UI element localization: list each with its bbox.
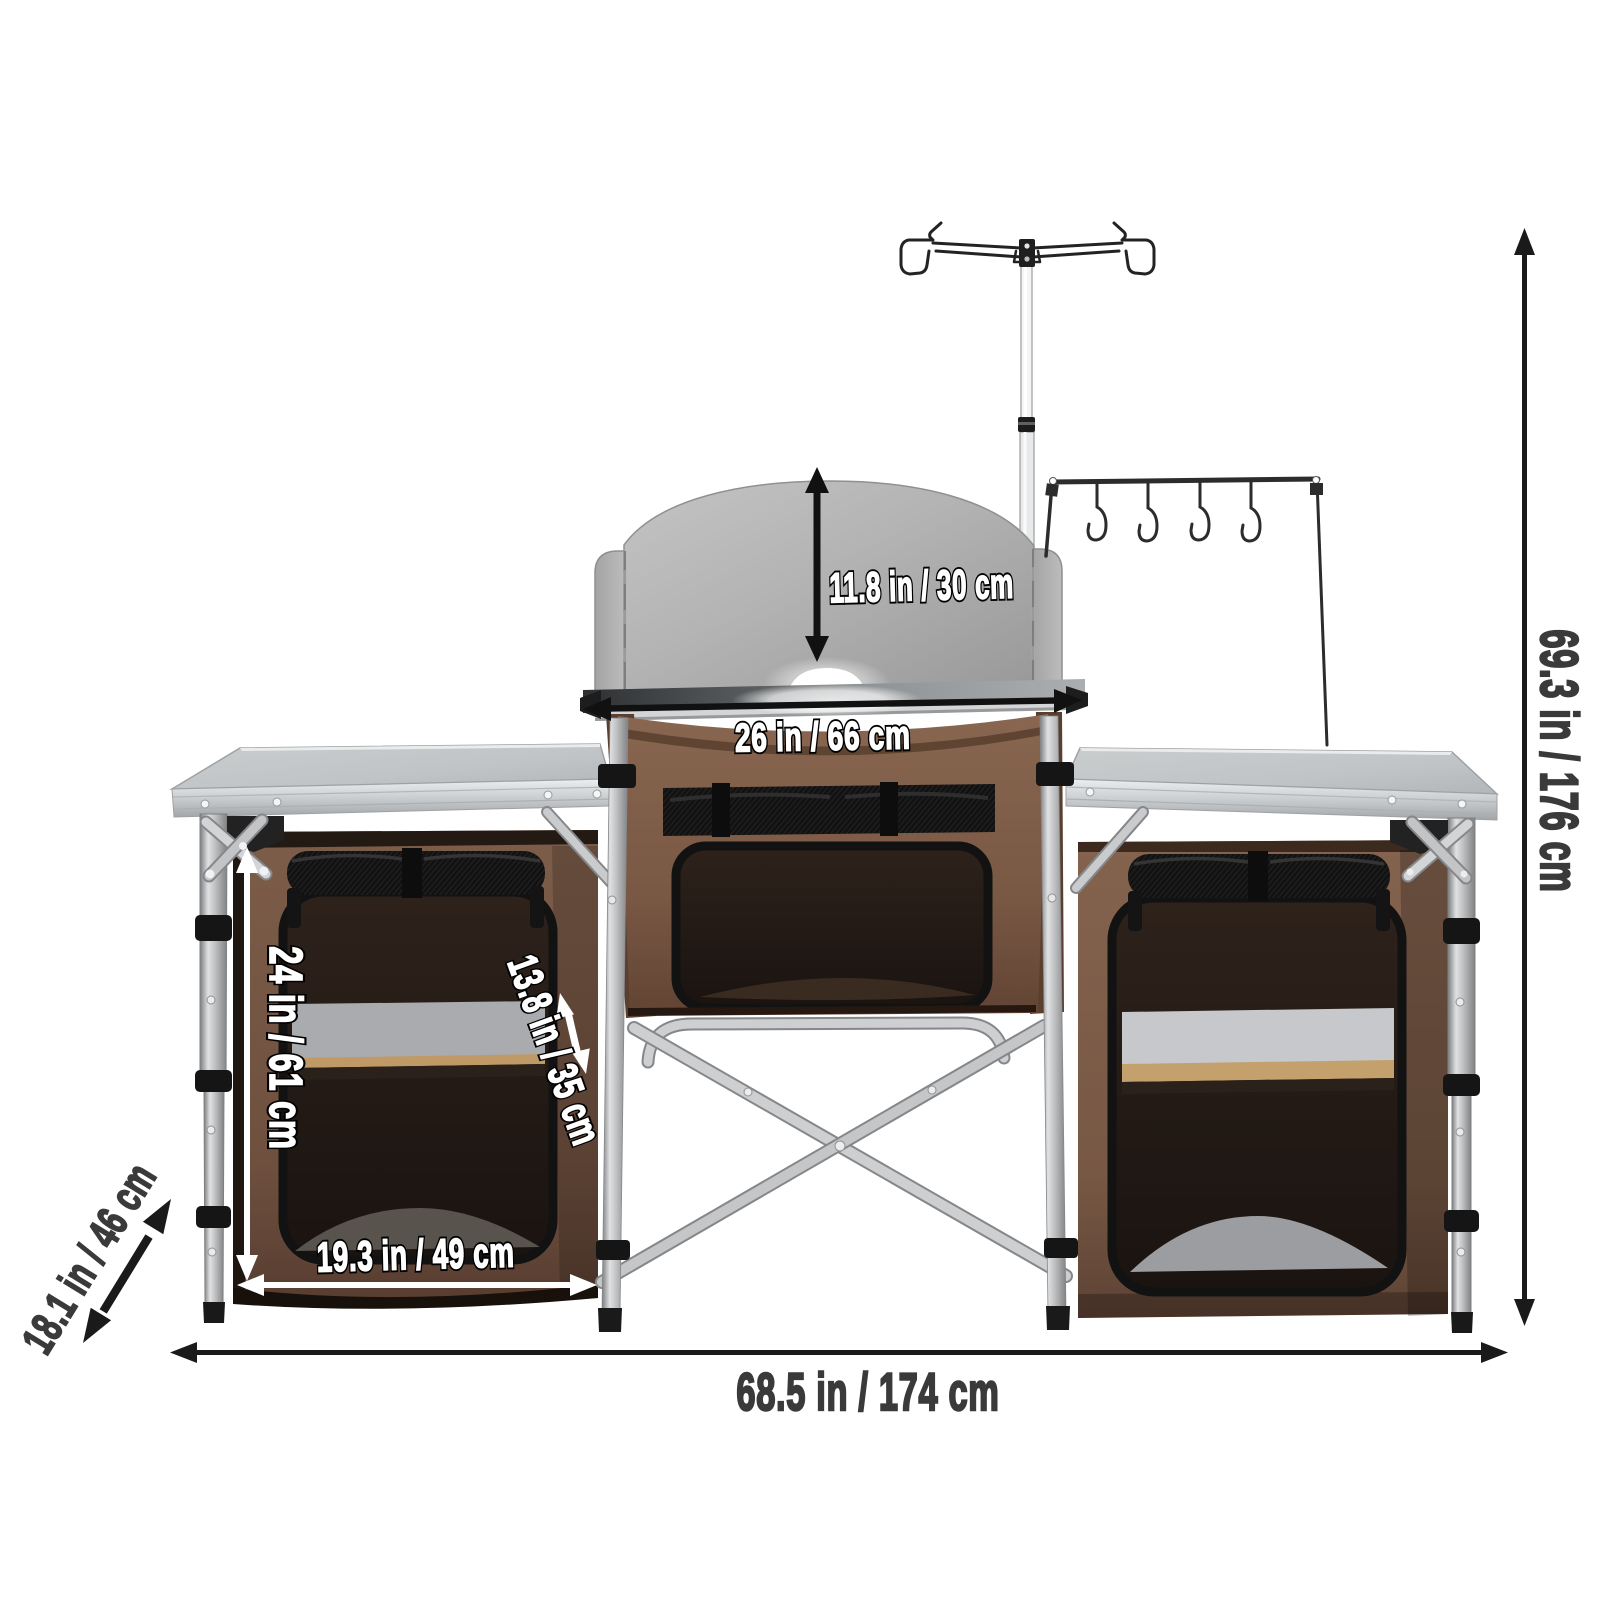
- svg-text:11.8 in / 30 cm: 11.8 in / 30 cm: [829, 560, 1015, 612]
- svg-text:19.3 in / 49 cm: 19.3 in / 49 cm: [316, 1229, 515, 1281]
- svg-text:68.5 in / 174 cm: 68.5 in / 174 cm: [736, 1364, 999, 1422]
- svg-text:69.3 in / 176 cm: 69.3 in / 176 cm: [1529, 629, 1587, 892]
- svg-text:26 in / 66 cm: 26 in / 66 cm: [735, 714, 911, 761]
- svg-text:24 in / 61 cm: 24 in / 61 cm: [260, 946, 311, 1149]
